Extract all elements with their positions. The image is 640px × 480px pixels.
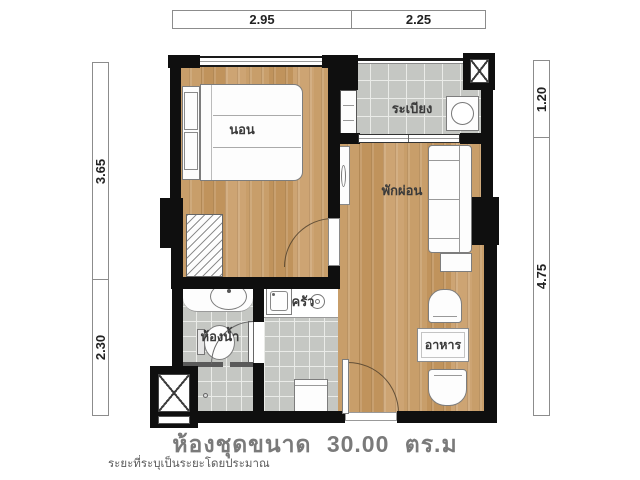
entrance-door-leaf (342, 359, 349, 414)
dimension-bar-top: 2.95 2.25 (172, 10, 486, 29)
wall-bath-kitchen-lower (253, 363, 264, 413)
wall-left-lower (172, 289, 183, 368)
entrance-threshold (345, 412, 397, 421)
wall-right-column (472, 197, 499, 245)
sofa-backrest (459, 146, 471, 252)
wall-right-lower (484, 245, 497, 413)
side-table (440, 253, 472, 272)
dimension-left-top: 3.65 (93, 158, 108, 183)
shaft-column-x (470, 59, 489, 83)
washer-drum (451, 102, 474, 125)
dining-label: อาหาร (417, 334, 469, 356)
floor-plan: 2.95 2.25 3.65 2.30 1.20 4.75 (0, 0, 640, 480)
wall-bedroom-bottom (171, 277, 340, 289)
sliding-door-divider (408, 135, 409, 142)
ac-condenser-unit (340, 90, 357, 135)
living-label: พักผ่อน (362, 179, 442, 201)
dining-chair-top (428, 289, 462, 323)
bedroom-door-leaf (328, 218, 340, 266)
bathroom-label: ห้องน้ำ (185, 325, 255, 347)
kitchen-faucet (272, 293, 275, 296)
bedroom-label: นอน (212, 118, 272, 140)
sofa-armrest-line (429, 238, 459, 239)
wall-balcony-bottom-left (328, 133, 360, 144)
bed-line (213, 115, 301, 116)
dimension-bar-right: 1.20 4.75 (533, 60, 550, 416)
balcony-railing (358, 58, 463, 64)
sofa-armrest-line (429, 160, 459, 161)
dimension-bar-left: 3.65 2.30 (92, 62, 109, 416)
tv-stand (341, 165, 346, 187)
bed-line (213, 147, 301, 148)
chair-seat-line (433, 316, 457, 317)
bedroom-window (200, 56, 322, 67)
stove-burner-center (315, 299, 320, 304)
wall-bottom-right (397, 411, 497, 423)
service-shaft-slot (158, 416, 190, 424)
fridge-door-line (295, 385, 327, 386)
plan-note: ระยะที่ระบุเป็นระยะโดยประมาณ (108, 455, 270, 473)
pillow (184, 92, 198, 130)
wall-bath-kitchen-upper (253, 289, 264, 322)
chair-seat-line (434, 375, 462, 376)
dimension-right-bottom: 4.75 (534, 264, 549, 289)
refrigerator (294, 379, 328, 414)
pillow (184, 132, 198, 170)
balcony-sliding-door (358, 134, 460, 143)
sink-faucet (227, 289, 231, 293)
wardrobe (186, 214, 223, 277)
ac-vent-line (343, 105, 354, 106)
wall-bottom-left (196, 411, 345, 423)
dimension-top-left: 2.95 (173, 11, 351, 28)
wall-left-upper (170, 58, 181, 198)
dining-chair-bottom (428, 369, 467, 406)
wall-balcony-bottom-right (460, 133, 493, 144)
shower-drain (203, 393, 208, 398)
dimension-right-top: 1.20 (534, 86, 549, 111)
dimension-top-right: 2.25 (351, 11, 485, 28)
sliding-door-track (359, 138, 459, 139)
balcony-label: ระเบียง (372, 97, 452, 119)
kitchen-label: ครัว (291, 292, 315, 310)
window-mullion (200, 61, 322, 62)
dimension-left-bottom: 2.30 (93, 335, 108, 360)
service-shaft-x (158, 374, 190, 412)
wall-left-column (160, 198, 183, 248)
kitchen-sink (266, 287, 292, 315)
ac-vent-line (343, 120, 354, 121)
wall-balcony-left (340, 55, 358, 90)
